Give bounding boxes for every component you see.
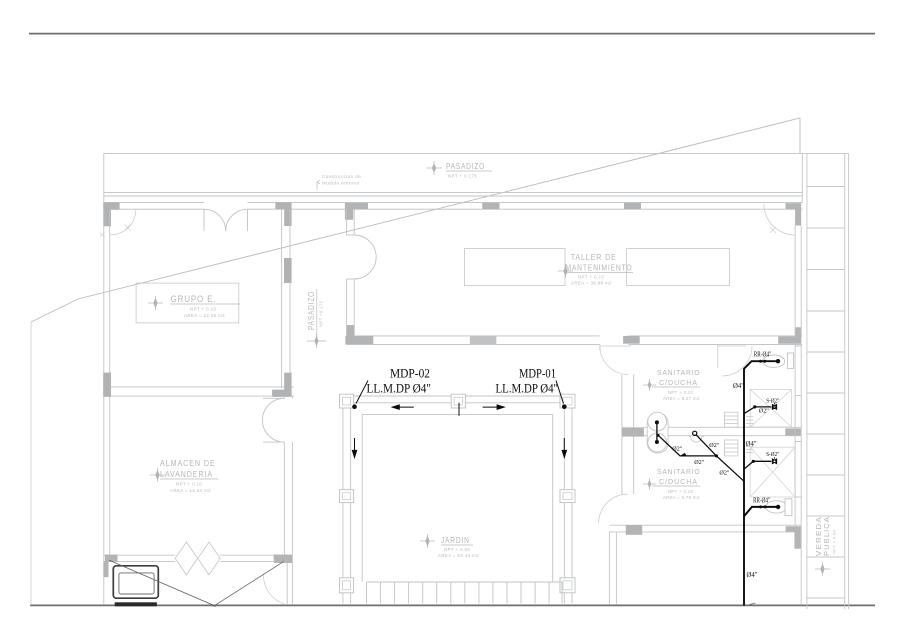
svg-text:NPT + 0.175: NPT + 0.175 [448,174,477,179]
svg-text:SANITARIO: SANITARIO [657,368,701,377]
svg-text:AREA = 36.99 m2: AREA = 36.99 m2 [571,281,612,286]
svg-text:Ø2": Ø2" [709,442,719,449]
svg-text:Construccion de: Construccion de [322,174,361,179]
svg-text:PASADIZO: PASADIZO [307,291,316,330]
svg-text:Ø2": Ø2" [759,408,769,415]
svg-text:Ø2": Ø2" [694,459,704,466]
svg-text:S-Ø2": S-Ø2" [766,397,779,404]
svg-text:MANTENIMIENTO: MANTENIMIENTO [565,263,632,273]
svg-text:NPT + 0.00: NPT + 0.00 [444,547,470,552]
svg-text:RR-Ø4": RR-Ø4" [753,498,770,505]
svg-text:NPT + 0.15: NPT + 0.15 [578,275,604,280]
svg-text:ALMACEN DE: ALMACEN DE [160,459,216,468]
svg-text:VEREDA: VEREDA [816,516,823,556]
svg-text:MDP-02: MDP-02 [390,367,430,381]
svg-text:Ø2": Ø2" [672,446,682,453]
svg-text:PASADIZO: PASADIZO [446,161,485,171]
svg-text:SANITARIO: SANITARIO [657,467,701,476]
svg-text:LL.M.DP Ø4": LL.M.DP Ø4" [496,382,559,396]
svg-text:TALLER DE: TALLER DE [571,252,617,262]
svg-text:LAVANDERIA: LAVANDERIA [160,470,213,479]
svg-text:NPT + 0.10: NPT + 0.10 [176,482,202,487]
svg-text:AREA = 52.44 m2: AREA = 52.44 m2 [438,553,479,558]
svg-text:NPT + 0.10: NPT + 0.10 [190,307,216,312]
svg-text:C/DUCHA: C/DUCHA [659,378,698,387]
svg-text:AREA = 22.55 m2: AREA = 22.55 m2 [184,313,225,318]
svg-text:S-Ø2": S-Ø2" [766,451,779,458]
svg-text:PUBLICA: PUBLICA [824,516,831,556]
svg-text:C/DUCHA: C/DUCHA [659,477,698,486]
svg-text:NPT + 0.10: NPT + 0.10 [668,489,693,494]
svg-text:NPT +0.175: NPT +0.175 [319,300,324,327]
svg-text:Ø4": Ø4" [746,440,757,448]
svg-text:LL.M.DP Ø4": LL.M.DP Ø4" [367,382,432,396]
svg-text:RR-Ø4": RR-Ø4" [754,352,772,359]
svg-text:AREA = 16.63 m2: AREA = 16.63 m2 [170,488,211,493]
svg-text:NPT + 0.10: NPT + 0.10 [668,390,693,395]
svg-text:NPT + 4.00: NPT + 4.00 [832,529,837,554]
svg-text:AREA = 6.70 m2: AREA = 6.70 m2 [663,495,700,500]
svg-text:GRUPO E.: GRUPO E. [171,294,217,304]
svg-text:Modulo Anterior: Modulo Anterior [322,181,360,186]
svg-text:AREA = 8.27 m2: AREA = 8.27 m2 [663,396,700,401]
svg-text:MDP-01: MDP-01 [519,367,556,381]
svg-text:Ø4": Ø4" [733,382,744,390]
svg-text:Ø2": Ø2" [719,470,729,477]
svg-text:Ø4": Ø4" [747,571,758,579]
svg-text:JARDIN: JARDIN [441,536,470,545]
